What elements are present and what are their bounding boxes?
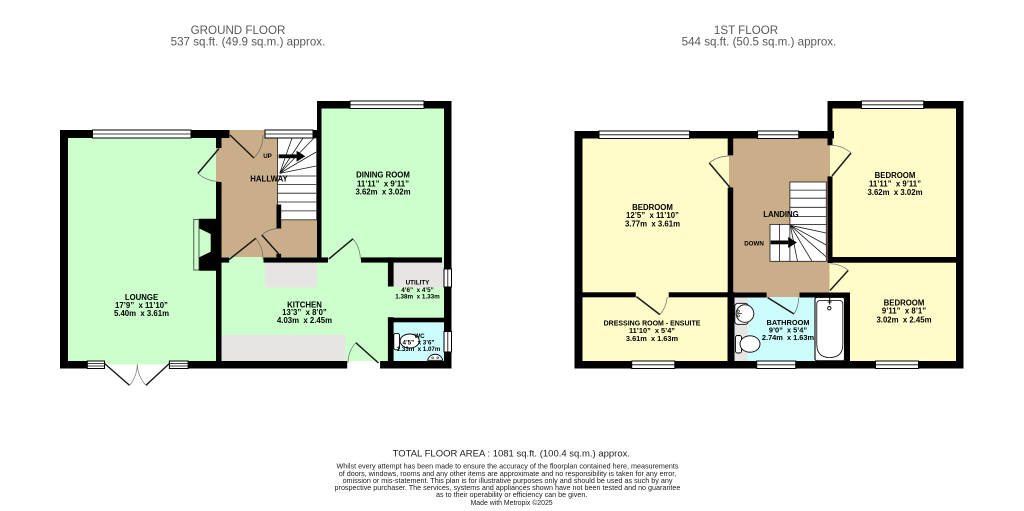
svg-text:2.74m x 1.63m: 2.74m x 1.63m [762, 333, 815, 342]
svg-text:3.62m x 3.02m: 3.62m x 3.02m [867, 188, 922, 197]
svg-text:1.38m x 1.33m: 1.38m x 1.33m [395, 293, 440, 300]
svg-text:537 sq.ft. (49.9 sq.m.) approx: 537 sq.ft. (49.9 sq.m.) approx. [171, 36, 326, 49]
svg-text:DOWN: DOWN [744, 241, 764, 248]
svg-text:3.61m x 1.63m: 3.61m x 1.63m [626, 334, 679, 343]
svg-text:UP: UP [263, 153, 272, 160]
svg-text:as to their operability or eff: as to their operability or efficiency ca… [436, 490, 587, 499]
svg-text:HALLWAY: HALLWAY [250, 175, 288, 184]
svg-text:TOTAL FLOOR AREA : 1081 sq.ft.: TOTAL FLOOR AREA : 1081 sq.ft. (100.4 sq… [393, 448, 630, 459]
svg-text:1.33m x 1.07m: 1.33m x 1.07m [397, 346, 441, 353]
svg-text:LANDING: LANDING [763, 210, 799, 219]
svg-text:3.77m x 3.61m: 3.77m x 3.61m [625, 219, 680, 228]
svg-text:DINING ROOM: DINING ROOM [356, 171, 410, 180]
svg-text:UTILITY: UTILITY [406, 279, 431, 286]
svg-text:4.03m x 2.45m: 4.03m x 2.45m [277, 316, 332, 325]
svg-text:544 sq.ft. (50.5 sq.m.) approx: 544 sq.ft. (50.5 sq.m.) approx. [682, 36, 837, 49]
svg-text:3.02m x 2.45m: 3.02m x 2.45m [876, 315, 931, 324]
svg-text:3.62m x 3.02m: 3.62m x 3.02m [355, 188, 410, 197]
svg-text:5.40m x 3.61m: 5.40m x 3.61m [114, 309, 169, 318]
svg-text:Made with Metropix ©2025: Made with Metropix ©2025 [471, 499, 553, 507]
